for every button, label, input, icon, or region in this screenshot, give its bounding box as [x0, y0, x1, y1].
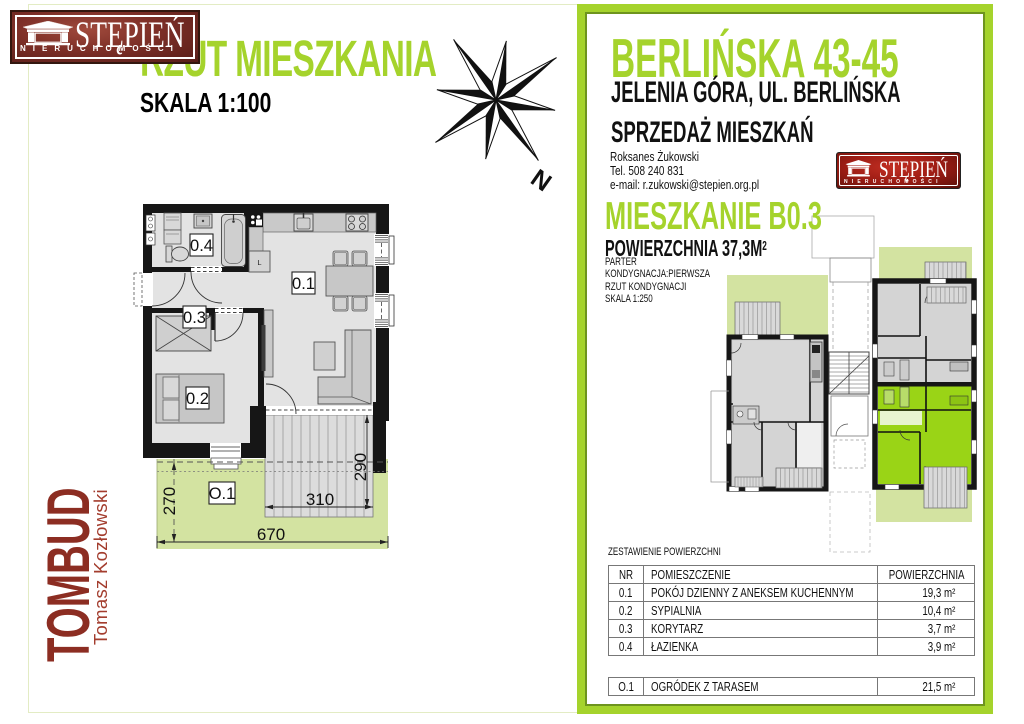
svg-text:O.1: O.1 — [209, 485, 236, 503]
svg-text:270: 270 — [160, 487, 179, 515]
svg-text:290: 290 — [351, 453, 370, 481]
svg-text:N: N — [526, 164, 557, 197]
svg-text:0.3: 0.3 — [183, 309, 206, 327]
svg-text:310: 310 — [306, 490, 334, 509]
svg-text:670: 670 — [257, 525, 285, 544]
svg-text:0.4: 0.4 — [190, 237, 213, 255]
svg-text:L: L — [257, 258, 261, 267]
svg-text:0.2: 0.2 — [186, 390, 209, 408]
svg-text:0.1: 0.1 — [292, 275, 315, 293]
